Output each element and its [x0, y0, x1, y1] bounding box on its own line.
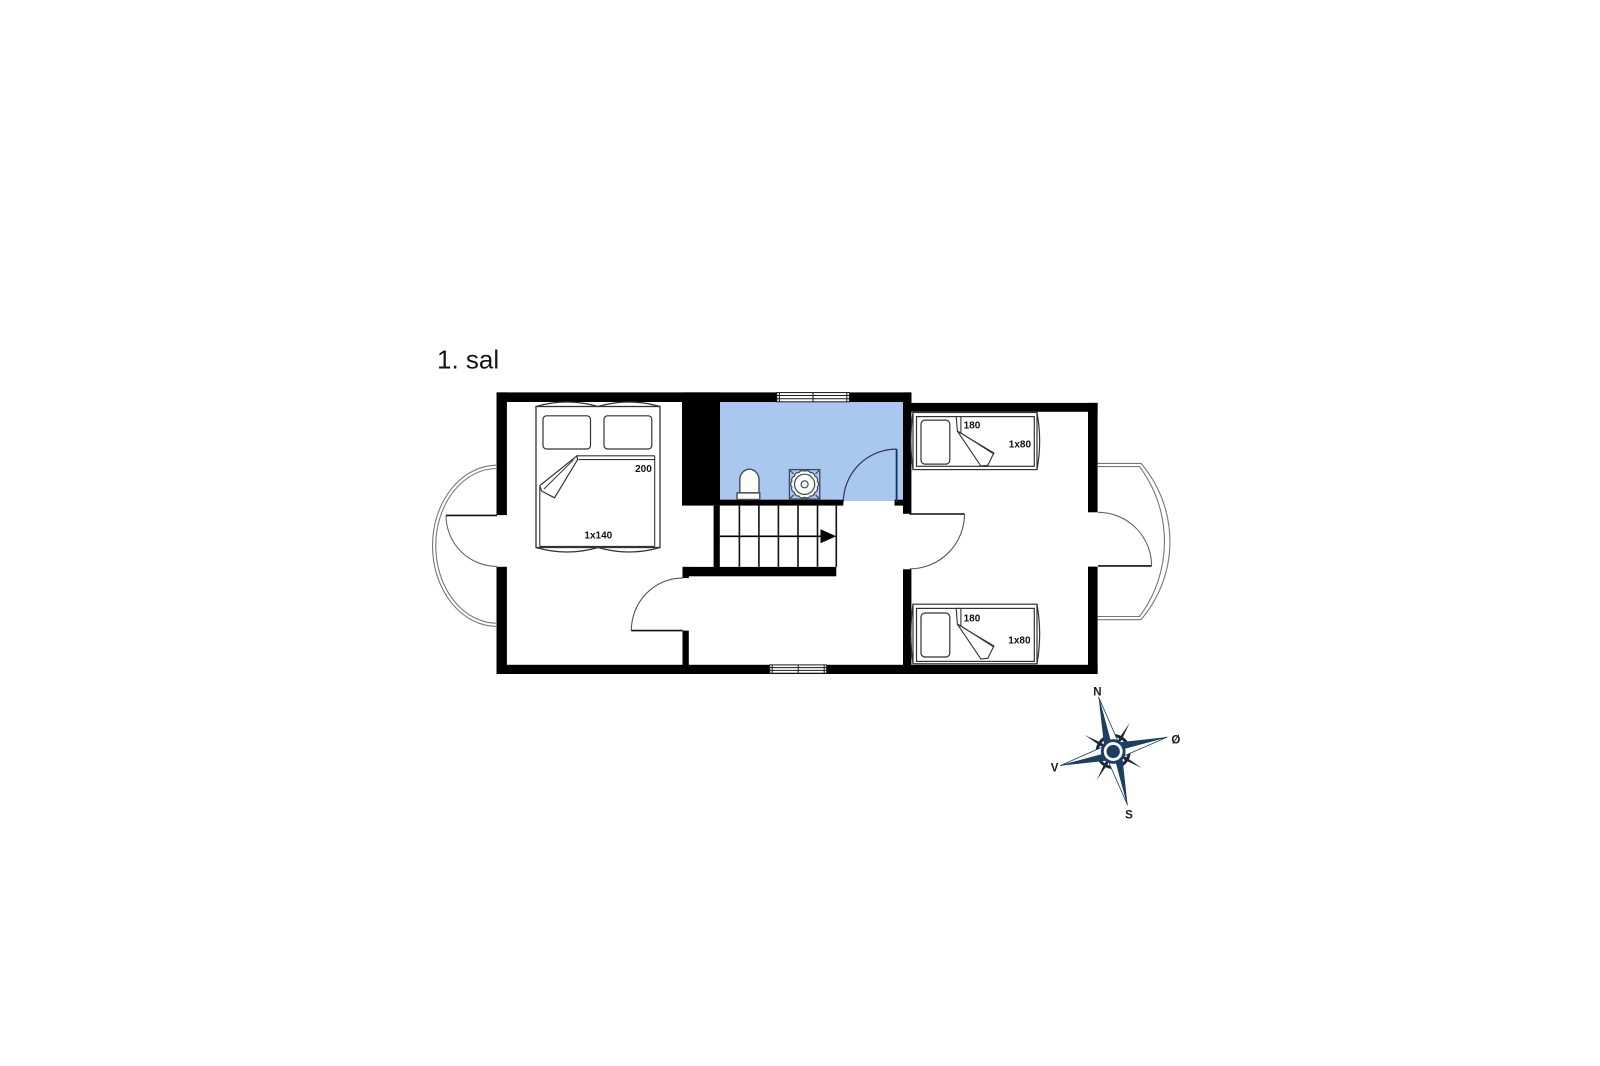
svg-text:V: V: [1051, 762, 1059, 774]
svg-text:1x80: 1x80: [1008, 635, 1031, 646]
svg-text:N: N: [1093, 686, 1101, 698]
svg-text:180: 180: [964, 614, 981, 625]
svg-text:Ø: Ø: [1171, 734, 1180, 746]
svg-text:200: 200: [635, 464, 652, 475]
svg-text:1x140: 1x140: [584, 530, 612, 541]
svg-text:1x80: 1x80: [1009, 440, 1032, 451]
svg-text:1. sal: 1. sal: [437, 344, 499, 374]
svg-text:S: S: [1125, 810, 1133, 822]
svg-text:180: 180: [964, 421, 981, 432]
